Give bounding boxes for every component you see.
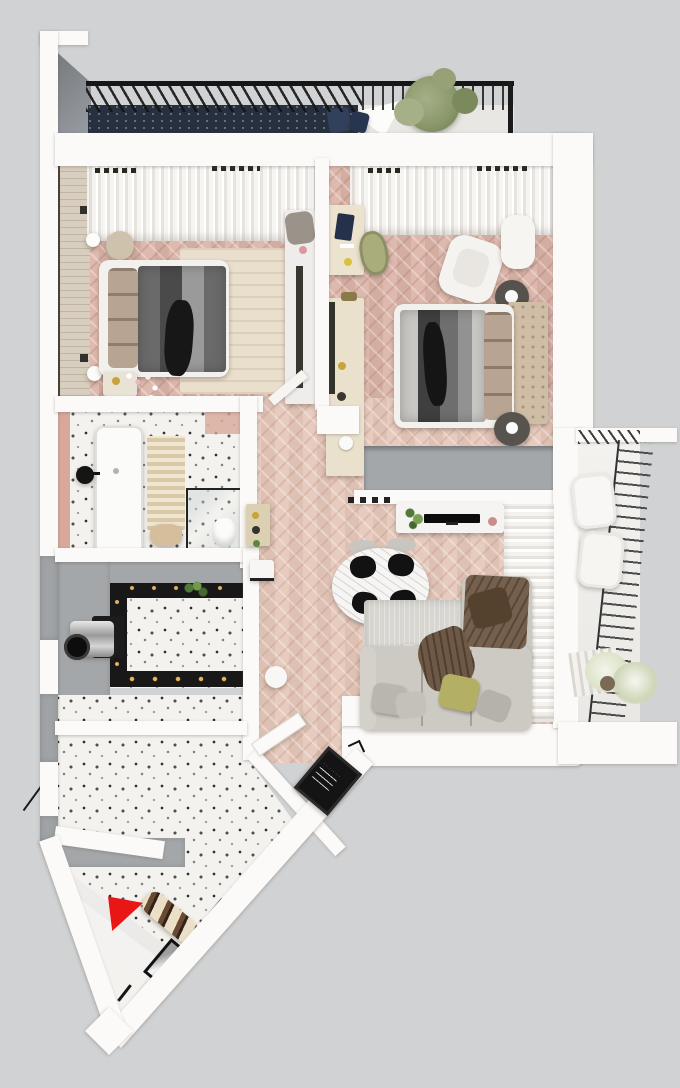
desk-keyboard (340, 244, 354, 248)
dried-plant-pot (600, 676, 615, 691)
wall-corner-fin (342, 696, 362, 726)
kitchen-spotlights-bottom (128, 675, 246, 683)
dresser-cushion (284, 210, 316, 246)
dresser-flowers (299, 246, 307, 254)
balcony-railing-post (508, 81, 513, 133)
curtain-rod-marks-living (348, 497, 392, 503)
kitchen-spotlights-top (128, 584, 228, 592)
shelf-item-white (339, 436, 353, 450)
tub-drain (113, 468, 119, 474)
wall-kitchen-bottom (55, 721, 247, 735)
bed-right-pillows (484, 312, 512, 420)
floor-lamp-cylinder (501, 215, 535, 269)
dried-plant-fluff-2 (612, 662, 658, 704)
shelf-item-gold (338, 362, 346, 370)
kitchen-plant (183, 580, 209, 600)
black-faucet-stem (90, 472, 100, 475)
side-table-decor (506, 422, 518, 434)
balcony-right-bottom-wall (558, 722, 677, 764)
curtain-rod-3 (368, 168, 404, 173)
tv-plant (404, 505, 426, 531)
bathroom-pink-patch (205, 410, 242, 434)
olive-tree-branch-2 (452, 88, 478, 114)
bathroom-pink-wall-strip (57, 408, 70, 554)
console-vase-gold (252, 512, 259, 519)
built-in-wardrobe-gray (364, 446, 556, 492)
paper-lantern (265, 666, 287, 688)
curtain-rod-4 (477, 166, 529, 171)
striped-bath-mat (147, 436, 185, 530)
washbasin (150, 524, 182, 546)
console-item-dark (252, 526, 260, 534)
balcony-lounge-chair-2 (576, 530, 626, 590)
olive-tree-branch (394, 98, 424, 126)
olive-tree-branch-3 (432, 68, 456, 90)
toilet-main (212, 518, 236, 548)
bed-left-pillows (108, 268, 138, 368)
sofa-pillow-gray-2 (395, 691, 428, 720)
curtain-rod (95, 168, 137, 173)
curtain-rod-2 (212, 166, 260, 171)
desk-monitor (334, 213, 354, 241)
wall-bedroom-divider (315, 158, 329, 410)
ball-lamp (86, 233, 100, 247)
bathtub (95, 426, 143, 556)
tv-console-decor-pink (488, 517, 497, 526)
wall-right-upper (553, 133, 593, 433)
floor-plan-canvas (0, 0, 680, 1088)
desk-cup (344, 258, 352, 266)
cooker-hood-cap (64, 634, 90, 660)
wardrobe-panel-strip (57, 165, 90, 403)
tv-stand (446, 522, 458, 525)
wall-bedroom-right-bottom-left (317, 406, 359, 434)
bedroom-left-curtains (87, 165, 315, 241)
wall-lamp-handle-2 (80, 354, 88, 362)
black-faucet (76, 466, 94, 484)
hall-white-box (250, 560, 274, 580)
hall-white-box-base (250, 578, 274, 581)
wall-bedroom-left-bottom (55, 396, 263, 412)
wall-bathroom-bottom (55, 548, 247, 562)
shelf-item-dark (337, 392, 346, 401)
balcony-railing-slats (86, 86, 362, 112)
balcony-lounge-chair (570, 472, 617, 530)
gold-decor (112, 377, 120, 385)
shelf-gold-item (341, 292, 357, 301)
headboard-tufted (508, 302, 548, 424)
pouf (106, 231, 134, 260)
console-plant-dot (253, 540, 260, 547)
wall-living-bottom (342, 724, 582, 766)
exterior-gray-block-1 (40, 556, 58, 640)
